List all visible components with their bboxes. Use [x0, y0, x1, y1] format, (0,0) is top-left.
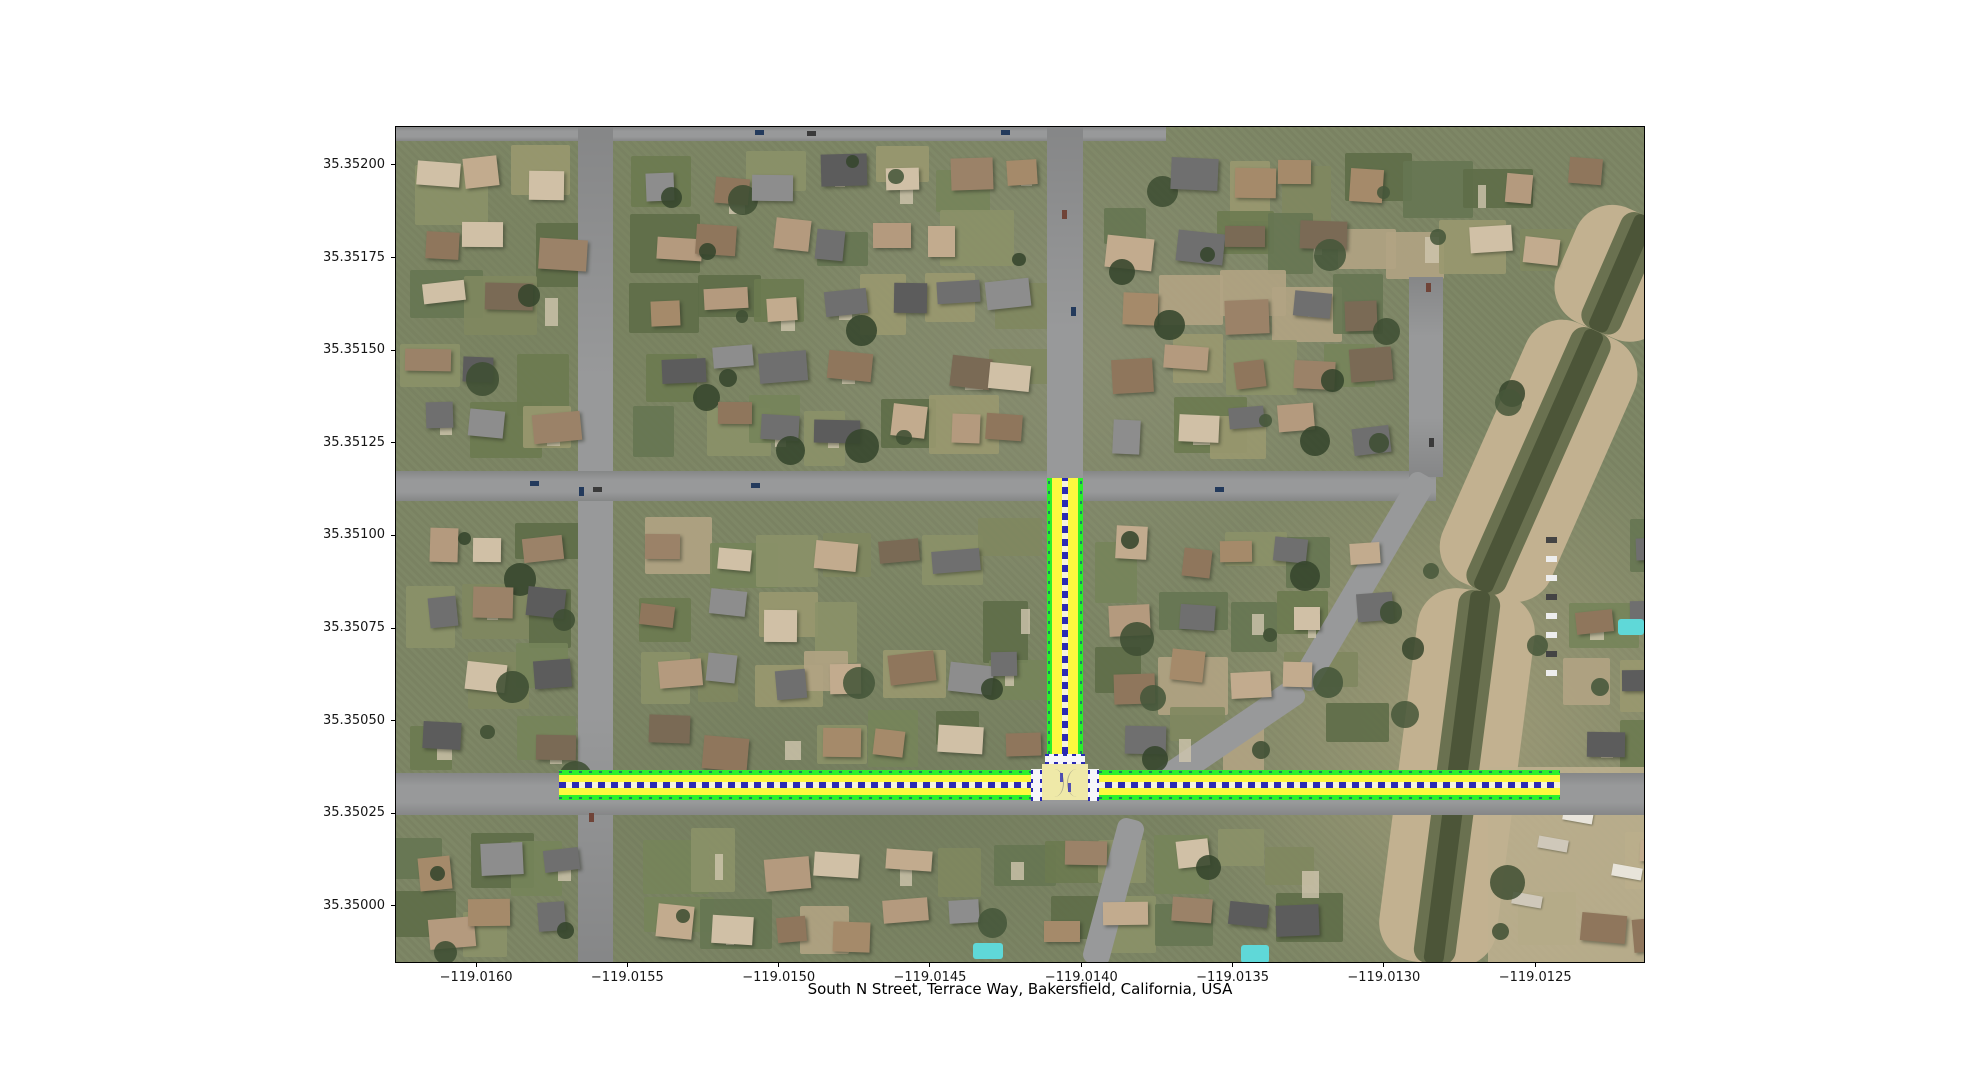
crosswalk-west [1031, 769, 1042, 801]
y-tick-mark [391, 905, 395, 906]
y-tick-label: 35.35175 [305, 251, 385, 265]
y-tick-label: 35.35125 [305, 436, 385, 450]
x-tick-label: −119.0155 [567, 970, 687, 985]
junction-marking [1068, 783, 1071, 792]
y-tick-mark [391, 257, 395, 258]
y-tick-mark [391, 720, 395, 721]
x-tick-label: −119.0150 [719, 970, 839, 985]
x-tick-label: −119.0160 [416, 970, 536, 985]
street-network-overlay [396, 127, 1644, 962]
x-tick-mark [476, 963, 477, 967]
y-tick-label: 35.35100 [305, 528, 385, 542]
x-tick-label: −119.0125 [1475, 970, 1595, 985]
x-tick-label: −119.0145 [870, 970, 990, 985]
matplotlib-figure: South N Street, Terrace Way, Bakersfield… [0, 0, 1986, 1080]
y-tick-label: 35.35200 [305, 158, 385, 172]
x-tick-label: −119.0135 [1173, 970, 1293, 985]
crosswalk-north [1045, 754, 1085, 764]
x-tick-mark [929, 963, 930, 967]
y-tick-label: 35.35075 [305, 621, 385, 635]
map-plot-area [395, 126, 1645, 963]
y-tick-label: 35.35025 [305, 806, 385, 820]
junction-marking [1060, 773, 1063, 782]
y-tick-label: 35.35000 [305, 899, 385, 913]
x-tick-mark [1232, 963, 1233, 967]
y-tick-mark [391, 813, 395, 814]
x-tick-mark [1081, 963, 1082, 967]
y-tick-mark [391, 628, 395, 629]
y-tick-label: 35.35150 [305, 343, 385, 357]
x-tick-label: −119.0130 [1324, 970, 1444, 985]
x-tick-mark [1383, 963, 1384, 967]
y-tick-mark [391, 442, 395, 443]
y-tick-mark [391, 535, 395, 536]
x-tick-mark [1535, 963, 1536, 967]
x-tick-mark [778, 963, 779, 967]
y-tick-mark [391, 350, 395, 351]
x-tick-mark [627, 963, 628, 967]
street-south-n-street [1047, 478, 1083, 753]
y-tick-label: 35.35050 [305, 714, 385, 728]
crosswalk-east [1088, 769, 1099, 801]
y-tick-mark [391, 164, 395, 165]
x-tick-label: −119.0140 [1021, 970, 1141, 985]
